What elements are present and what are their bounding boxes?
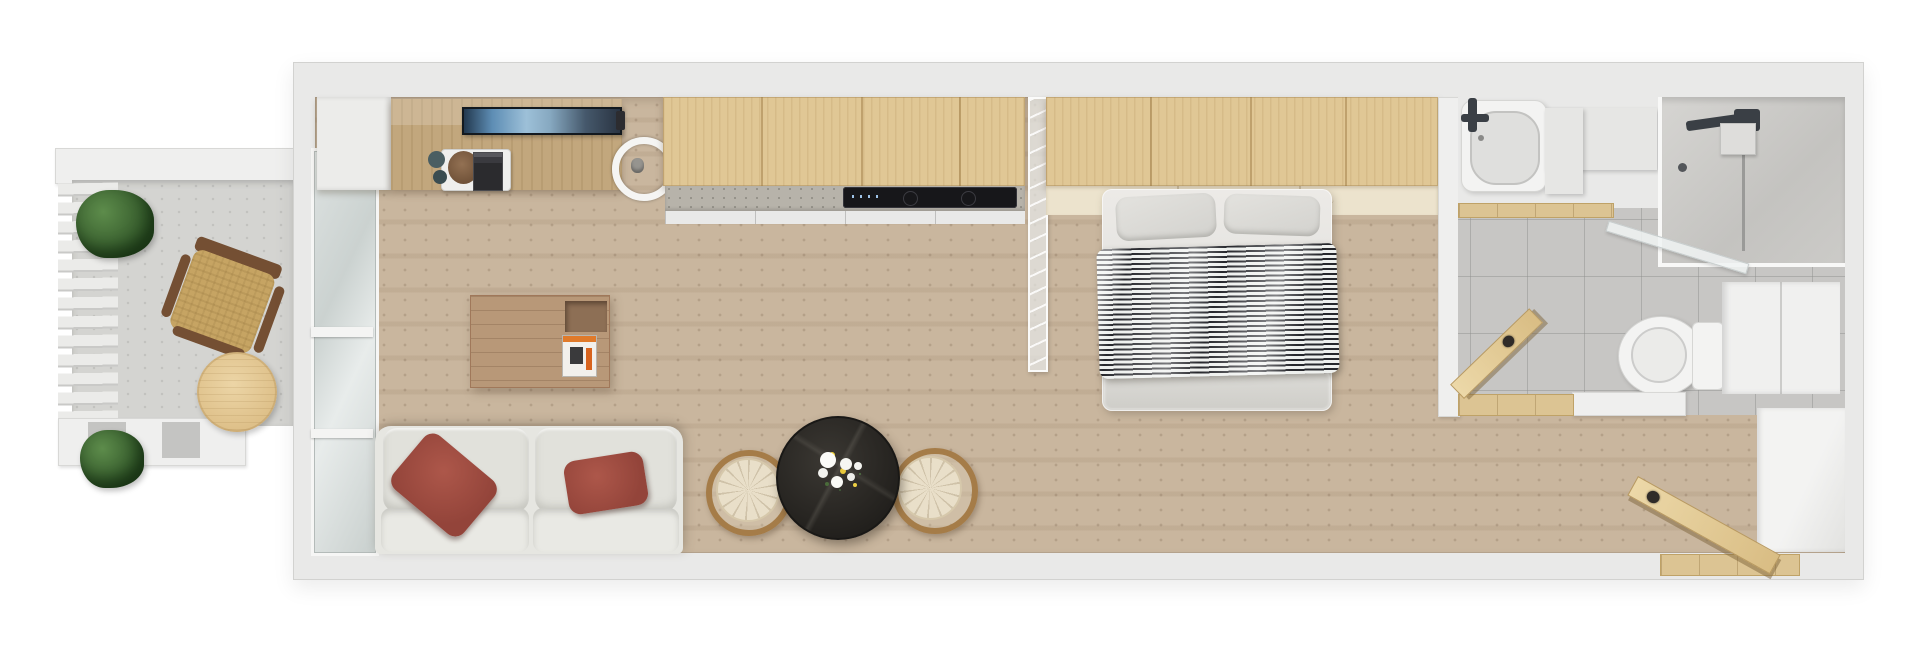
- cooktop-burner: [903, 191, 918, 206]
- coffee-table: [470, 295, 610, 388]
- cabinet-seam: [761, 97, 763, 186]
- ring-lamp-knob: [631, 158, 644, 173]
- tv-screen: [462, 107, 622, 135]
- floor-plan-render: [0, 0, 1920, 671]
- bed-pillow: [1223, 193, 1320, 236]
- dining-table: [776, 416, 900, 540]
- sofa-seat-cushion: [533, 508, 679, 552]
- kitchen-upper-cabinets: [663, 97, 1025, 186]
- shower-drain: [1678, 163, 1687, 172]
- entry-closet: [1757, 408, 1845, 552]
- wardrobe-seam: [1345, 97, 1347, 186]
- vase-icon: [428, 151, 445, 168]
- plant-icon: [76, 190, 154, 258]
- glass-partition: [1028, 97, 1048, 372]
- bathtub-faucet-bar: [1461, 114, 1489, 122]
- tv-bracket: [616, 111, 625, 130]
- striped-duvet: [1096, 243, 1339, 379]
- balcony-top-wall: [55, 148, 297, 184]
- vase-icon: [433, 170, 447, 184]
- cooktop: [843, 187, 1017, 208]
- dining-chair-cushion: [716, 458, 780, 522]
- bath-cabinet-seam: [1780, 282, 1782, 394]
- bed-pillow: [1115, 192, 1217, 241]
- bathroom-bottom-wall: [1572, 392, 1686, 416]
- toilet-tank: [1692, 322, 1724, 390]
- cooktop-controls: [852, 195, 882, 198]
- door-knob-icon: [1645, 489, 1662, 506]
- kitchen-cabinet-fronts: [665, 211, 1025, 224]
- bath-cabinet: [1722, 282, 1840, 394]
- black-book: [473, 152, 503, 191]
- dining-chair-cushion: [898, 456, 962, 520]
- balcony-bottom-notch: [162, 422, 200, 458]
- flower-bouquet-icon: [820, 452, 836, 468]
- door-knob-icon: [1500, 333, 1516, 349]
- cooktop-burner: [961, 191, 976, 206]
- balcony-round-table: [197, 352, 277, 432]
- bedroom-bathroom-wall: [1438, 97, 1460, 417]
- shower: [1658, 97, 1845, 267]
- bathtub-basin: [1470, 111, 1540, 185]
- glass-mullion: [311, 327, 373, 337]
- shower-shelf: [1720, 123, 1756, 155]
- magazine-banner: [563, 336, 596, 342]
- magazine-photo: [570, 347, 583, 364]
- wardrobe: [1046, 97, 1438, 186]
- bath-wood-bench: [1458, 203, 1614, 218]
- cabinet-seam: [861, 97, 863, 186]
- bathtub-drain: [1478, 135, 1484, 141]
- bathroom-door-threshold: [1458, 394, 1574, 416]
- glass-mullion: [311, 429, 373, 438]
- plant-icon: [80, 430, 144, 488]
- toilet-seat: [1631, 327, 1687, 383]
- entry-cabinet: [317, 97, 391, 190]
- magazine-spine: [586, 348, 592, 370]
- bath-half-wall-return: [1545, 108, 1583, 194]
- balcony-glass-wall: [311, 148, 379, 556]
- coffee-table-recess: [565, 301, 607, 332]
- magazine: [562, 335, 597, 377]
- cabinet-seam: [959, 97, 961, 186]
- wardrobe-seam: [1150, 97, 1152, 186]
- wardrobe-seam: [1250, 97, 1252, 186]
